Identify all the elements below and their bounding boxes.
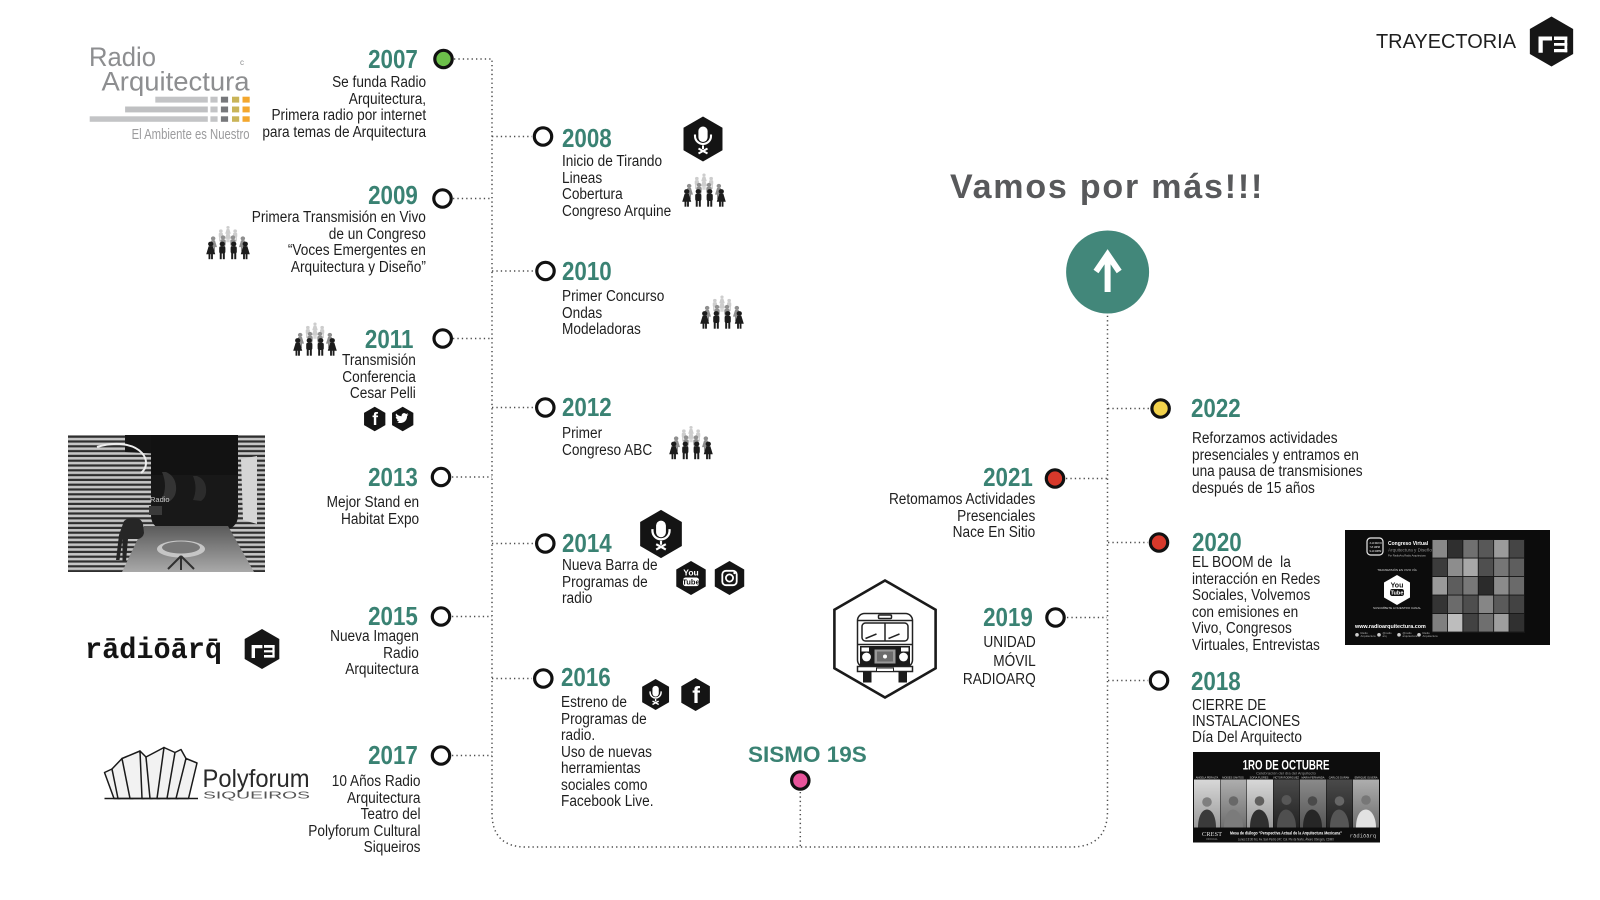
svg-text:www.radioarquitectura.com: www.radioarquitectura.com: [1354, 624, 1426, 630]
svg-text:arq: arq: [1383, 634, 1387, 638]
svg-text:3-10 MAYO: 3-10 MAYO: [1370, 542, 1382, 545]
svg-text:Tube: Tube: [1391, 591, 1404, 597]
svg-text:c: c: [240, 58, 244, 67]
svg-text:Polyforum: Polyforum: [203, 765, 310, 793]
svg-text:You: You: [1391, 583, 1404, 590]
svg-text:El Ambiente es Nuestro: El Ambiente es Nuestro: [132, 127, 250, 143]
svg-text:ANGELA PERALTA: ANGELA PERALTA: [1196, 776, 1219, 780]
svg-text:SOFIA FLORES: SOFIA FLORES: [1250, 776, 1269, 780]
svg-text:Arquitectura: Arquitectura: [102, 67, 250, 97]
svg-text:7-8 19PM: 7-8 19PM: [1370, 546, 1380, 549]
svg-text:Arquitectura: Arquitectura: [1423, 634, 1439, 638]
svg-text:MARIA FERNANDA: MARIA FERNANDA: [1301, 776, 1324, 780]
svg-text:Arquitectura y Diseño: Arquitectura y Diseño: [1388, 548, 1432, 553]
svg-text:Congreso Virtual: Congreso Virtual: [1388, 541, 1429, 547]
svg-text:rādiōārq: rādiōārq: [1350, 833, 1376, 840]
svg-text:Lunes 19:30 hrs. Av. San Pedro: Lunes 19:30 hrs. Av. San Pedro 247, Col.…: [1238, 838, 1335, 842]
svg-text:9-10 18PM: 9-10 18PM: [1370, 550, 1382, 553]
svg-text:TRANSMISIÓN EN VIVO VÍA: TRANSMISIÓN EN VIVO VÍA: [1377, 567, 1417, 572]
svg-text:TRAYECTORIA: TRAYECTORIA: [1376, 31, 1517, 53]
svg-text:Radio: Radio: [150, 495, 170, 504]
svg-text:OFICIAL: OFICIAL: [1206, 837, 1218, 841]
svg-text:arquitectura: arquitectura: [1403, 634, 1418, 638]
svg-text:MOISES SANTOS: MOISES SANTOS: [1222, 776, 1244, 780]
svg-text:CARLOS DURAN: CARLOS DURAN: [1329, 776, 1350, 780]
svg-text:SIQUEIROS: SIQUEIROS: [203, 791, 311, 802]
svg-text:Mesa de diálogo “Perspectiva A: Mesa de diálogo “Perspectiva Actual de l…: [1230, 831, 1342, 837]
svg-text:Por RadioArq Radio Arquitectur: Por RadioArq Radio Arquitectura: [1388, 554, 1426, 558]
svg-text:Arquitectura: Arquitectura: [1361, 634, 1377, 638]
svg-text:rādiōārq̄: rādiōārq̄: [85, 634, 222, 668]
svg-text:ENRIQUE OLVERA: ENRIQUE OLVERA: [1355, 776, 1378, 780]
svg-text:VICTOR RODRIGUEZ: VICTOR RODRIGUEZ: [1273, 776, 1299, 780]
svg-text:Celebración del día del Arquit: Celebración del día del Arquitecto: [1256, 771, 1317, 776]
svg-text:SUSCRÍBETE A NUESTRO CANAL: SUSCRÍBETE A NUESTRO CANAL: [1373, 606, 1421, 610]
